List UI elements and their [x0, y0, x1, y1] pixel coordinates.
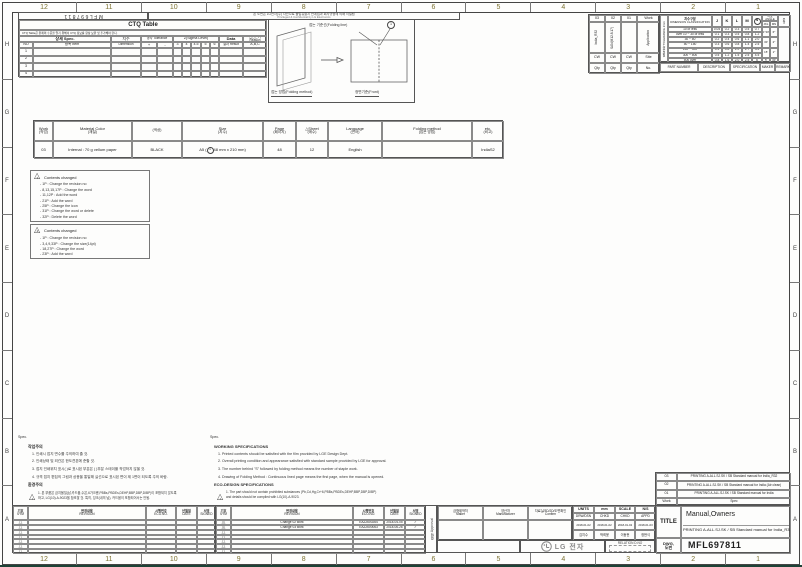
part-header-cell: MAKER [760, 63, 775, 72]
rev-header: 서명SIGNED [197, 506, 216, 520]
ctq-empty-cell [157, 63, 173, 71]
part-header-cell: SPECIFICATION [730, 63, 760, 72]
ruler-number: 4 [531, 553, 596, 565]
ctq-empty-cell [33, 48, 111, 56]
units-date-cell: 2018-01-02 [573, 520, 594, 530]
ctq-empty-cell [219, 63, 243, 71]
rev-date-cell [176, 549, 197, 554]
folding-method-label: 접는 방법(Folding method) [271, 90, 312, 97]
revlist-desc: PRINTING A-ALL.SJ.SK / SB Standard manua… [677, 490, 791, 498]
dwg-label: DWG, 도번 [656, 538, 681, 554]
row-letters-right: HGFEDCBA [790, 12, 800, 553]
material-header: (색상) [132, 121, 182, 141]
ruler-top: 121110987654321 [12, 2, 790, 12]
material-header: Work(작업) [34, 121, 53, 141]
ctq-empty-cell [141, 71, 157, 79]
triangle-marker: △ [221, 549, 226, 554]
material-header-kr: (치수) [218, 131, 227, 135]
notes-item: 4. Drawing of Folding Method : Continuou… [218, 475, 384, 479]
notes-eco-line: 1. The part should not contain prohibite… [226, 490, 376, 494]
ctq-empty-cell [141, 63, 157, 71]
ruler-number: 11 [77, 553, 142, 565]
ruler-number: 1 [726, 2, 790, 12]
tol-angle-val: 6° [770, 27, 778, 37]
row-letter: A [2, 486, 12, 553]
ctq-empty-cell [111, 63, 141, 71]
ruler-number: 7 [337, 2, 402, 12]
ctq-empty-cell [182, 48, 191, 56]
ctq-empty-cell [141, 48, 157, 56]
tol-col-header: L [732, 15, 742, 27]
triangle-marker: △ [18, 549, 23, 554]
triangle-icon: △ [221, 530, 225, 534]
ctq-empty-cell [141, 56, 157, 64]
work-site-cell: CW [605, 53, 621, 63]
tol-col-header: J [712, 15, 722, 27]
revlist-sym: 03 [656, 473, 677, 481]
contents-changed-item: - 1P : Change the revision no [40, 236, 146, 240]
ctq-empty-cell [243, 48, 267, 56]
contents-changed-item: - 32P : Delete the word [40, 215, 146, 219]
material-header: etc.(비고) [472, 121, 504, 141]
work-vertical-text: SAN(M12.8.17) [611, 27, 614, 49]
revlist-desc: PRINTING A-ALL.SJ.SK / SB Standard manua… [677, 473, 791, 481]
triangle-icon: △ [18, 549, 22, 553]
notes-item: 2. Overall printing condition and appear… [218, 459, 386, 463]
ctq-empty-cell [191, 63, 201, 71]
ctq-empty-cell [111, 48, 141, 56]
tol-grade-empty [778, 27, 791, 63]
row-letter: B [2, 419, 12, 487]
tol-grade-text: 등급 [783, 18, 786, 24]
material-header-kr: (색상) [152, 129, 161, 133]
ctq-empty-cell [173, 71, 182, 79]
material-header-kr: (페이지) [273, 131, 285, 135]
maker-header: 금형제작처Maker [438, 506, 483, 520]
contents-changed-item: - 18,27P : Change the word [40, 247, 146, 251]
notes-eco-line: 하고, LG(10)-A-9023을 참조할 것. 특히, 잉크(내의 납), … [38, 495, 150, 500]
triangle-icon: △ [221, 544, 225, 548]
ctq-empty-cell [210, 71, 219, 79]
notes-english: Spec.WORKING SPECIFICATIONS1. Printed co… [206, 434, 434, 504]
rev-header: 기호SYM [216, 506, 231, 520]
work-header-cell: 02 [605, 15, 621, 22]
ctq-empty-cell [191, 48, 201, 56]
row-letter: C [2, 351, 12, 419]
material-header-kr: (언어) [350, 131, 359, 135]
ctq-empty-cell [111, 71, 141, 79]
ctq-empty-cell [33, 71, 111, 79]
ctq-row-no: 1 [19, 48, 33, 56]
ruler-number: 8 [272, 2, 337, 12]
notes-title: 작업주의 [28, 444, 43, 450]
work-header-cell: 03 [589, 15, 605, 22]
work-header-cell: Work [637, 15, 660, 22]
rev-header-en: REVISION [284, 513, 299, 516]
row-letter: A [790, 486, 800, 553]
material-header: Size(치수) [182, 121, 263, 141]
maker-block: 금형제작처Maker양산처Manufacturer자료실/3D/2D/도면확인C… [437, 505, 572, 540]
ruler-number: 8 [272, 553, 337, 565]
ctq-row-no: 3 [19, 63, 33, 71]
notes-spec-label: Spec. [18, 435, 27, 439]
rev-header: 시행번호ECO.NO. [353, 506, 384, 520]
material-table: Work(작업)Material Color(재질)(색상)Size(치수)Pa… [33, 120, 503, 158]
tol-angle-val: 30' [762, 37, 770, 47]
work-qty-cell: Qty [589, 63, 605, 74]
triangle-icon: △ [221, 549, 225, 553]
tol-angle-val: 2° [770, 37, 778, 47]
tol-angle-val: 15' [762, 48, 770, 58]
rev-signed-cell [197, 549, 216, 554]
work-site-cell: CW [589, 53, 605, 63]
contents-changed-item: - 3,4,9,33P : Change the size(14pt) [40, 242, 146, 246]
lg-logo-icon [541, 541, 552, 552]
rev-desc-cell [28, 549, 146, 554]
ctq-empty-cell [111, 56, 141, 64]
ctq-empty-cell [157, 56, 173, 64]
units-date-cell: 2018-01-02 [594, 520, 615, 530]
approval-cell: 결재 Approval [425, 505, 437, 553]
maker-header: 양산처Manufacturer [483, 506, 528, 520]
contents-changed-item: - 25P : Change the icon [40, 204, 146, 208]
tol-side-label: 일반공차 TOLERANCE 2mm [660, 15, 668, 63]
tolerance-table: 일반공차 TOLERANCE 2mm치수구분DIMENSION CLASSIFI… [659, 14, 790, 62]
ruler-number: 10 [142, 553, 207, 565]
rev-eco-cell [146, 549, 176, 554]
ctq-empty-cell [157, 71, 173, 79]
tol-col-header: K [722, 15, 732, 27]
notes-item: 3. The number behind "S" followed by fol… [218, 467, 358, 471]
maker-header-en: Maker [456, 513, 465, 516]
material-size-mark: 1 [207, 147, 214, 154]
tol-angle-val: 1° [770, 48, 778, 58]
rev-desc-cell [231, 549, 353, 554]
maker-empty-cell [438, 520, 483, 541]
ruler-number: 6 [402, 2, 467, 12]
triangle-icon: △ [18, 520, 22, 524]
material-header-kr: (비고) [483, 131, 492, 135]
folding-line-label: 접는 기준선(Folding line) [309, 23, 347, 28]
triangle-icon: △ [18, 530, 22, 534]
title-band: TITLE Manual,Owners PRINTING A-ALL.SJ.SK… [655, 505, 790, 553]
ruler-number: 3 [596, 2, 661, 12]
revlist-sym: 01 [656, 490, 677, 498]
work-site-cell: Site [637, 53, 660, 63]
notes-item: 1. 인쇄시 접지 면수를 주의하여 줄 것. [32, 452, 88, 457]
ctq-row-no: 2 [19, 56, 33, 64]
title-line2: PRINTING A-ALL.SJ.SK / SB Standard manua… [683, 525, 789, 532]
rev-header-en: ECO.NO. [154, 513, 167, 516]
contents-changed-box: △3Contents changed- 1P : Change the revi… [30, 170, 150, 222]
work-site-cell: CW [621, 53, 637, 63]
triangle-number: 2 [223, 521, 224, 523]
tol-col-circled: N [754, 18, 761, 25]
contents-changed-title: △3Contents changed [34, 173, 146, 181]
rev-signed-cell [405, 549, 426, 554]
notes-title: WORKING SPECIFICATIONS [214, 444, 268, 449]
rev-header: 시행번호ECO.NO. [146, 506, 176, 520]
relation-value-box [609, 545, 651, 552]
approval-label: 결재 Approval [429, 518, 434, 540]
logo-band-spacer [437, 540, 520, 553]
units-label-cell: mm [594, 506, 615, 513]
contents-changed-box: △2Contents changed- 1P : Change the revi… [30, 224, 150, 260]
rev-header-en: ECO.NO. [362, 513, 375, 516]
relation-cell: RELATION D.NO [605, 540, 655, 553]
work-qty-cell: Qty [621, 63, 637, 74]
maker-empty-cell [483, 520, 528, 541]
triangle-icon: △ [221, 539, 225, 543]
work-table: 030201WorkIndia_R32SAN(M12.8.17)Applicat… [588, 14, 659, 73]
ctq-empty-cell [219, 48, 243, 56]
maker-header-en: Manufacturer [496, 513, 515, 516]
units-role-cell: DRW/DSN [573, 513, 594, 520]
contents-changed-title-text: Contents changed [44, 175, 76, 180]
material-color: BLACK [132, 141, 182, 159]
ruler-number: 3 [596, 553, 661, 565]
notes-item: 4. 규격 접지 편집의 그림과 상응을 통일해 실선으로 표시된 면이 제 1… [32, 475, 168, 480]
revlist-sym: 02 [656, 481, 677, 489]
ruler-number: 4 [531, 2, 596, 12]
rev-date-cell [384, 549, 405, 554]
ctq-empty-cell [191, 71, 201, 79]
ctq-table: CTQ TableCTQ Table은 완제의 수준을 알기 위해서 CTQ 정… [18, 19, 266, 77]
part-header-row: PART NUMBERDESCRIPTIONSPECIFICATIONMAKER… [659, 62, 790, 73]
row-letter: C [790, 351, 800, 419]
row-letter: B [790, 419, 800, 487]
rev-header: 변경내용REVISION [28, 506, 146, 520]
ctq-empty-cell [182, 63, 191, 71]
units-label-cell: SCALE [615, 506, 635, 513]
ctq-empty-cell [182, 71, 191, 79]
units-block: UNITSmmSCALEN/SDRW/DSNCHKDCHKDAPPD2018-0… [572, 505, 655, 540]
rev-header-en: SIGNED [409, 513, 421, 516]
ctq-empty-cell [243, 56, 267, 64]
row-letters-left: HGFEDCBA [2, 12, 12, 553]
maker-empty-cell [528, 520, 573, 541]
row-letter: E [790, 215, 800, 283]
lg-brand-text: LG 전자 [555, 542, 585, 552]
material-folding [382, 141, 472, 159]
ruler-number: 2 [661, 553, 726, 565]
ctq-row-no: 4 [19, 71, 33, 79]
triangle-marker: △1 [217, 494, 225, 502]
material-material: Internal : 70 g vellum paper [53, 141, 132, 159]
folding-mark: 1 [390, 23, 392, 26]
ctq-empty-cell [219, 56, 243, 64]
tol-side-text: 일반공차 TOLERANCE 2mm [663, 21, 666, 57]
row-letter: D [2, 283, 12, 351]
title-content: Manual,Owners PRINTING A-ALL.SJ.SK / SB … [681, 506, 791, 538]
notes-item: 1. Printed contents should be satisfied … [218, 452, 348, 456]
units-date-cell: 2018-01-02 [615, 520, 635, 530]
contents-changed-item: - 31P : Change the word or delete [40, 209, 146, 213]
contents-changed-item: - 11,12P : Add the word [40, 193, 146, 197]
contents-changed-notes: △3Contents changed- 1P : Change the revi… [30, 170, 150, 280]
units-role-cell: APPD [635, 513, 656, 520]
work-vertical-text: Application [647, 30, 650, 46]
ctq-empty-cell [243, 63, 267, 71]
ruler-number: 1 [726, 553, 790, 565]
work-qty-cell: Qty [605, 63, 621, 74]
rev-header-en: DATE [390, 513, 398, 516]
triangle-marker: △2 [34, 227, 42, 235]
ruler-number: 12 [12, 553, 77, 565]
units-label-cell: UNITS [573, 506, 594, 513]
ruler-number: 2 [661, 2, 726, 12]
tol-class-header: 치수구분DIMENSION CLASSIFICATION [668, 15, 712, 27]
revlist-desc: PRINTING A-ALL.SJ.SK / SB Standard manua… [677, 481, 791, 489]
maker-header-en: Confirm [545, 513, 556, 516]
ctq-empty-cell [243, 71, 267, 79]
dwg-label-kr: 도번 [665, 546, 672, 550]
ctq-empty-cell [210, 63, 219, 71]
contents-changed-title: △2Contents changed [34, 227, 146, 235]
work-vertical-cell: SAN(M12.8.17) [605, 22, 621, 53]
ctq-empty-cell [210, 48, 219, 56]
triangle-icon: △ [18, 539, 22, 543]
revision-table-left: 기호SYM변경내용REVISION시행번호ECO.NO.년월일DATE서명SIG… [12, 505, 215, 553]
row-letter: H [790, 12, 800, 80]
work-qty-cell: No. [637, 63, 660, 74]
rev-header-en: SYM [17, 513, 24, 516]
tol-angle-val: 1°30' [762, 27, 770, 37]
title-label: TITLE [656, 506, 681, 538]
units-label-cell: N/S [635, 506, 656, 513]
row-letter: H [2, 12, 12, 80]
title-line1: Manual,Owners [683, 511, 735, 518]
part-header-cell: DESCRIPTION [698, 63, 730, 72]
ruler-number: 12 [12, 2, 77, 12]
material-header: △Sheet(매수) [296, 121, 328, 141]
triangle-number: 1 [32, 497, 34, 501]
row-letter: F [790, 148, 800, 216]
triangle-marker: △1 [29, 494, 37, 502]
material-header: Page(페이지) [263, 121, 296, 141]
folding-mark-circle: 1 [387, 21, 395, 29]
material-work: 03 [34, 141, 53, 159]
tol-col-header: N [752, 15, 762, 27]
ruler-number: 9 [207, 2, 272, 12]
material-header-kr: (재질) [88, 131, 97, 135]
tol-class-en: DIMENSION CLASSIFICATION [670, 21, 709, 24]
ctq-title: CTQ Table [19, 20, 267, 30]
row-letter: D [790, 283, 800, 351]
units-role-cell: CHKD [594, 513, 615, 520]
rev-header: 변경내용REVISION [231, 506, 353, 520]
material-etc: IndiaS2 [472, 141, 504, 159]
ruler-number: 11 [77, 2, 142, 12]
dwg-number: MFL697811 [681, 538, 791, 554]
notes-spec-label: Spec. [210, 435, 219, 439]
work-header-cell: 01 [621, 15, 637, 22]
work-vertical-cell [621, 22, 637, 53]
ctq-empty-cell [182, 56, 191, 64]
work-vertical-cell: Application [637, 22, 660, 53]
rev-header: 서명SIGNED [405, 506, 426, 520]
row-letter: G [2, 80, 12, 148]
ctq-empty-cell [173, 56, 182, 64]
material-header: Material Color(재질) [53, 121, 132, 141]
lg-logo-cell: LG 전자 [520, 540, 605, 553]
rev-header-en: SYM [220, 513, 227, 516]
tol-col-header: M [742, 15, 752, 27]
material-header: Folding method(접는 방법) [382, 121, 472, 141]
notes-eco-title: 환경주의 [28, 482, 43, 488]
material-header-kr: (작업) [39, 131, 48, 135]
rev-header-en: DATE [182, 513, 190, 516]
triangle-icon: △ [18, 544, 22, 548]
part-header-cell: REMARK [775, 63, 791, 72]
ctq-empty-cell [201, 63, 210, 71]
ctq-empty-cell [201, 71, 210, 79]
ctq-empty-cell [210, 56, 219, 64]
triangle-icon: △ [18, 535, 22, 539]
rev-sym-cell: △ [13, 549, 28, 554]
notes-eco-line: and details should be complied with LG(1… [226, 495, 299, 499]
material-header-kr: (매수) [307, 131, 316, 135]
triangle-number: 3 [37, 176, 39, 180]
title-revision-list: 03PRINTING A-ALL.SJ.SK / SB Standard man… [655, 472, 790, 505]
units-role-cell: CHKD [615, 513, 635, 520]
tol-grade-header: 등급 [778, 15, 791, 27]
material-header: Language(언어) [328, 121, 382, 141]
ctq-empty-cell [191, 56, 201, 64]
ctq-empty-cell [33, 63, 111, 71]
ctq-empty-cell [219, 71, 243, 79]
rev-eco-cell [353, 549, 384, 554]
drawing-sheet: 121110987654321 121110987654321 HGFEDCBA… [0, 0, 802, 567]
ruler-number: 6 [402, 553, 467, 565]
ctq-empty-cell [157, 48, 173, 56]
rev-sym-cell: △ [216, 549, 231, 554]
folding-front-label: 정면기준(Front) [355, 90, 379, 97]
contents-changed-item: - 23P : Add the word [40, 252, 146, 256]
rev-header-en: REVISION [79, 513, 94, 516]
ctq-empty-cell [173, 63, 182, 71]
rev-header: 년월일DATE [176, 506, 197, 520]
triangle-icon: △ [18, 525, 22, 529]
revision-table-right: 기호SYM변경내용REVISION시행번호ECO.NO.년월일DATE서명SIG… [215, 505, 425, 553]
material-language: English [328, 141, 382, 159]
ctq-empty-cell [201, 56, 210, 64]
ruler-number: 9 [207, 553, 272, 565]
rev-header: 기호SYM [13, 506, 28, 520]
ruler-number: 5 [466, 553, 531, 565]
ruler-number: 7 [337, 553, 402, 565]
part-header-cell: PART NUMBER [660, 63, 698, 72]
material-sheet: 12 [296, 141, 328, 159]
ctq-empty-cell [173, 48, 182, 56]
work-vertical-text: India_R32 [595, 30, 598, 45]
ctq-empty-cell [33, 56, 111, 64]
ctq-empty-cell [201, 48, 210, 56]
row-letter: F [2, 148, 12, 216]
material-page: 48 [263, 141, 296, 159]
maker-header: 자료실/3D/2D/도면확인Confirm [528, 506, 573, 520]
rev-header-en: SIGNED [200, 513, 212, 516]
contents-changed-item: - 21P : Add the word [40, 199, 146, 203]
triangle-number: 2 [37, 229, 39, 233]
material-header-kr: (접는 방법) [419, 131, 436, 135]
notes-eco-title: ECO-DESIGN SPECIFICATIONS [214, 482, 274, 487]
work-vertical-cell: India_R32 [589, 22, 605, 53]
contents-changed-item: - 1P : Change the revision no [40, 182, 146, 186]
notes-korean: Spec.작업주의1. 인쇄시 접지 면수를 주의하여 줄 것.2. 인쇄상태 … [14, 434, 209, 504]
ruler-number: 5 [466, 2, 531, 12]
triangle-icon: △ [221, 535, 225, 539]
